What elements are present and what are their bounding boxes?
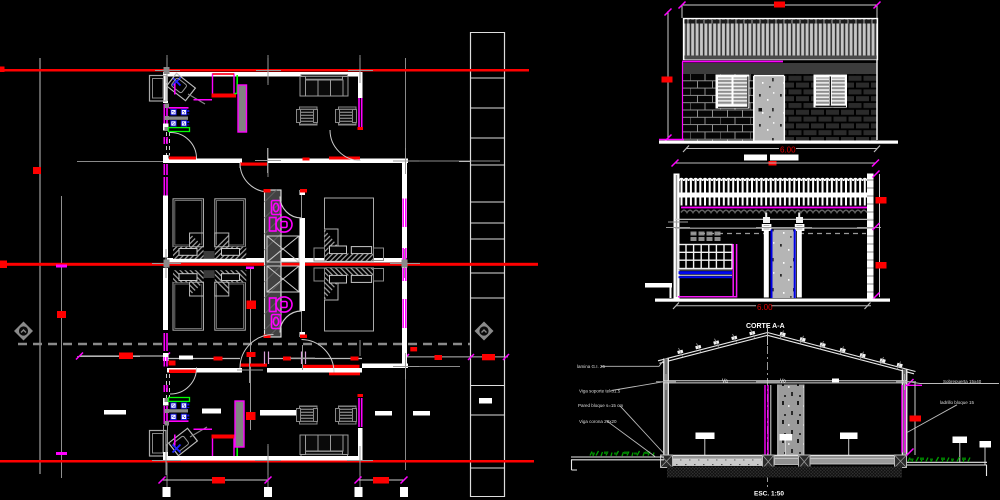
svg-text:Viga corona 20x20: Viga corona 20x20 [579,419,617,424]
svg-text:Pared bloque s=15 cm: Pared bloque s=15 cm [578,403,623,408]
svg-text:Va: Va [722,379,728,385]
svg-text:Vo: Vo [780,379,786,385]
svg-text:6.00: 6.00 [780,146,796,155]
svg-text:CORTE A-A: CORTE A-A [746,323,785,330]
svg-text:ESC. 1:50: ESC. 1:50 [754,491,784,498]
svg-text:6.00: 6.00 [757,303,773,312]
svg-text:Viga soporte teko1.5: Viga soporte teko1.5 [579,389,621,394]
svg-text:ladrillo bloque 15: ladrillo bloque 15 [940,400,975,405]
